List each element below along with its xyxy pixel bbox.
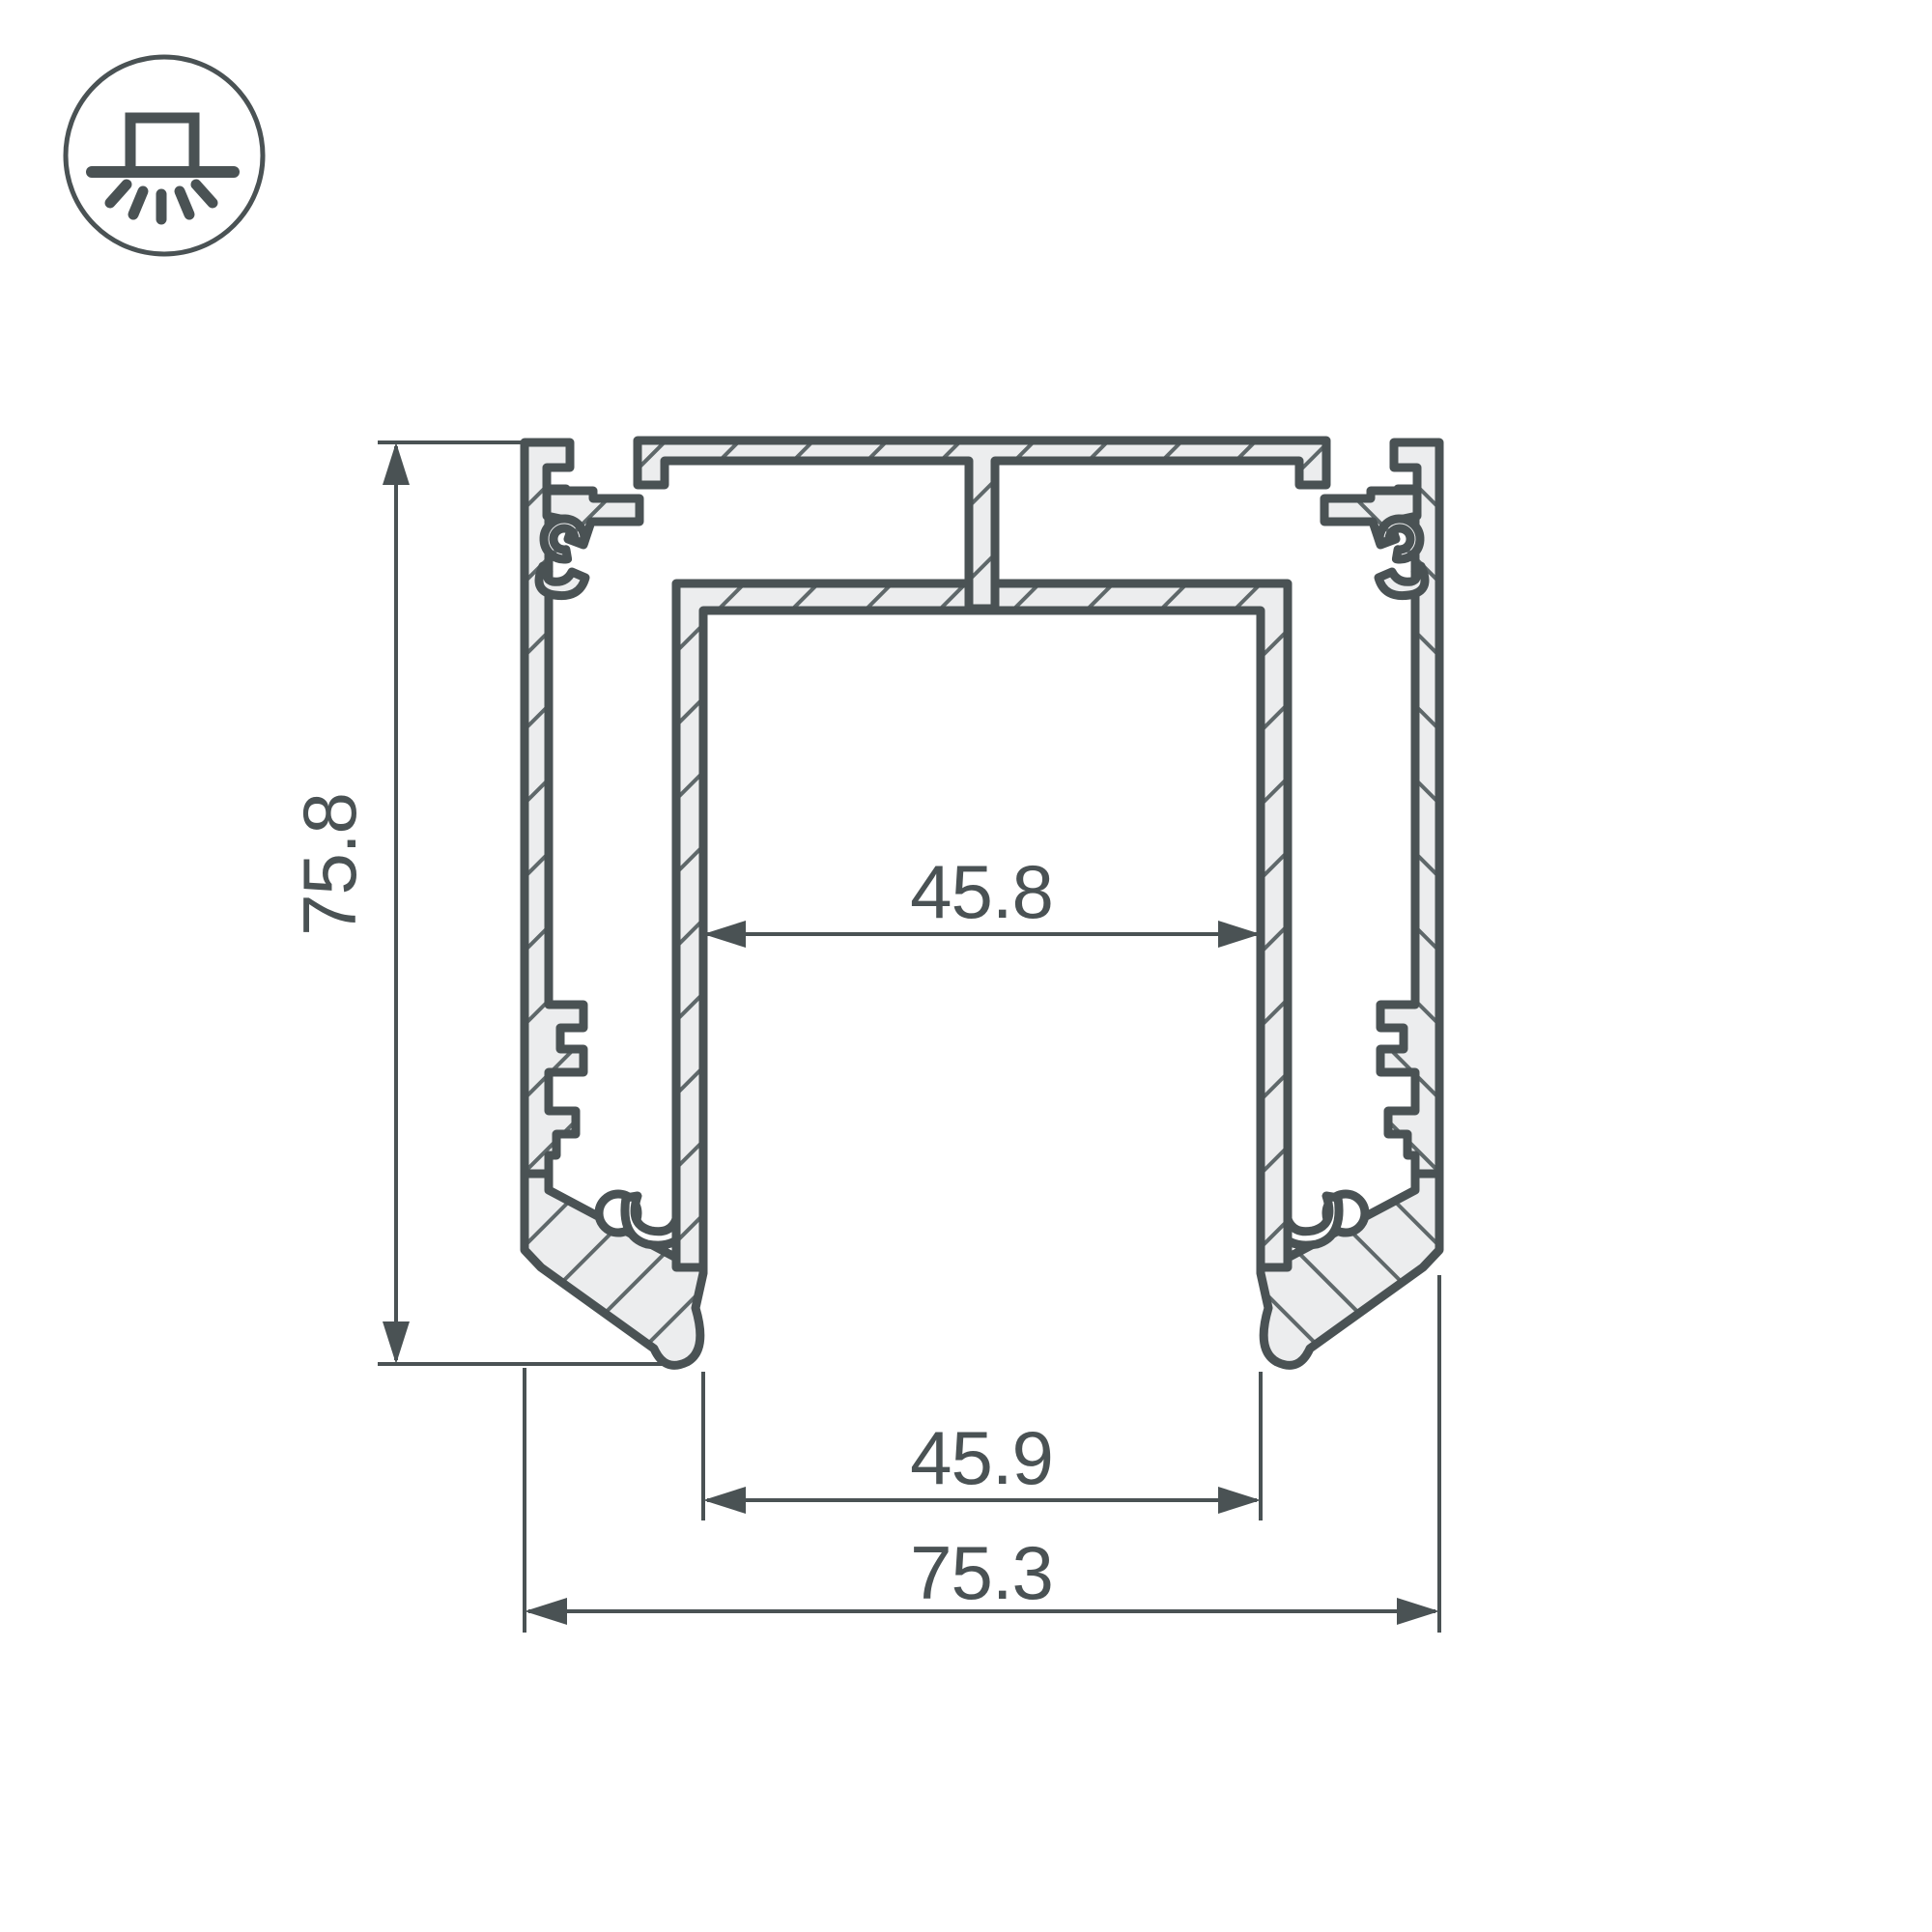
profile-cross-section-drawing: 75.8 45.8 45.9 75.3 — [0, 0, 1932, 1932]
height-dimension-label: 75.8 — [287, 793, 372, 936]
inner-width-bottom-label: 45.9 — [910, 1415, 1053, 1500]
technical-drawing-page: 75.8 45.8 45.9 75.3 — [0, 0, 1932, 1932]
overall-width-label: 75.3 — [910, 1530, 1053, 1615]
icon-fixture-box — [130, 118, 194, 172]
inner-width-top-label: 45.8 — [910, 849, 1053, 934]
boss-curl-hook — [539, 566, 585, 596]
surface-mounted-light-icon — [66, 57, 263, 254]
icon-light-rays — [110, 185, 213, 219]
icon-circle — [66, 57, 263, 254]
